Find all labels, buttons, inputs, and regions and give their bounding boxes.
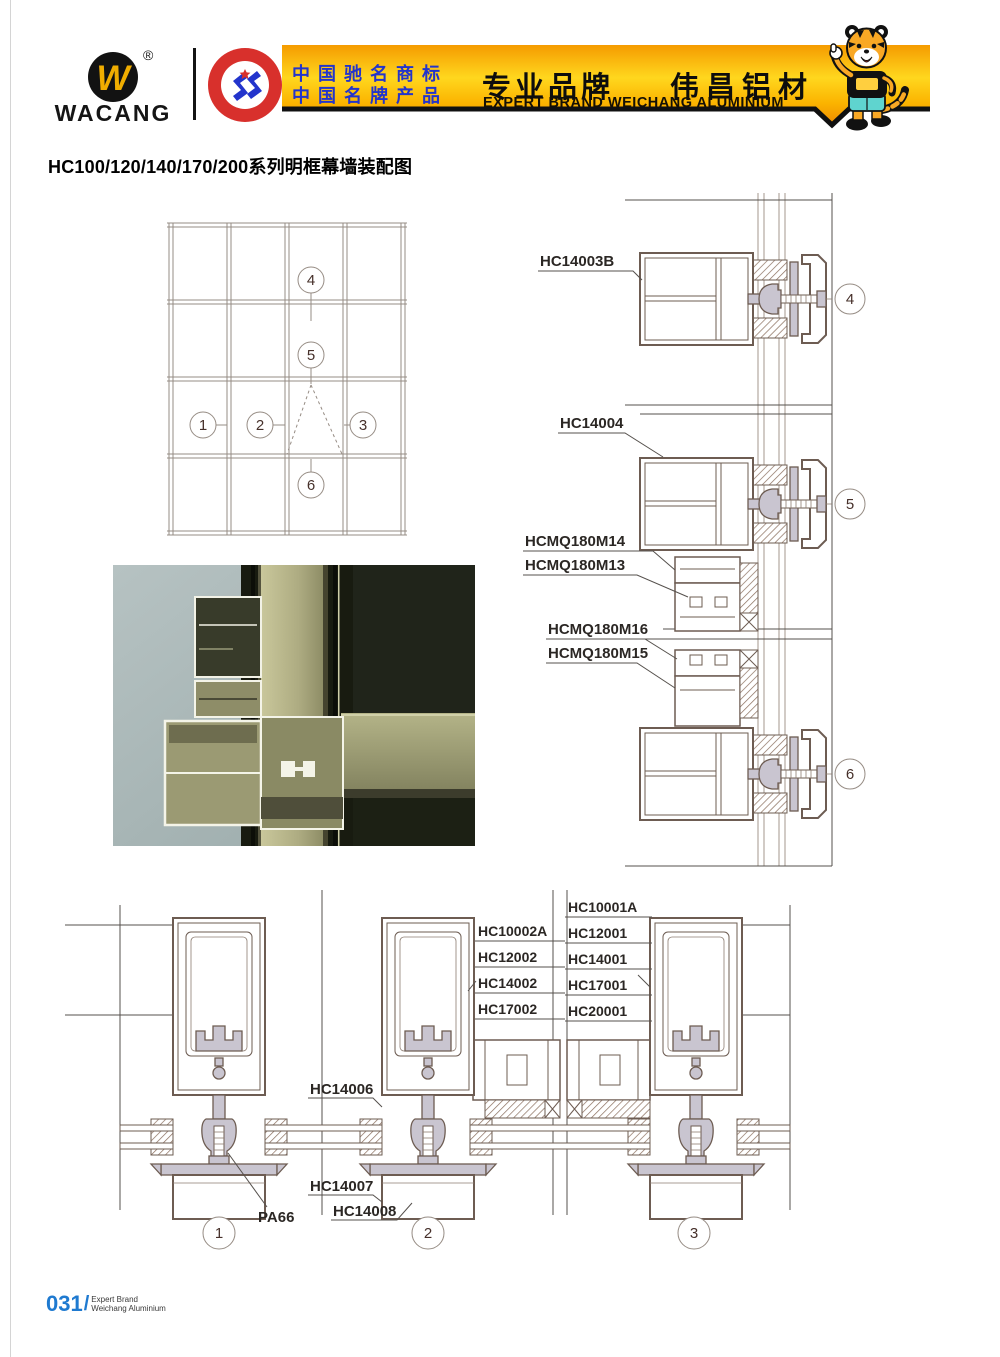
elevation-diagram: 4 5 1 2 3 6 [158,213,428,549]
svg-text:2: 2 [424,1225,432,1242]
footer-caption-line2: Weichang Aluminium [91,1304,166,1313]
banner-subtitle: EXPERT BRAND WEICHANG ALUMINIUM [483,95,784,111]
svg-text:HC14004: HC14004 [560,415,624,432]
svg-text:3: 3 [359,417,367,434]
detail-callout-3: 3 [678,1217,710,1249]
svg-text:HC17002: HC17002 [478,1001,537,1017]
tiger-mascot [828,20,912,132]
brand-name: WACANG [55,100,172,126]
svg-text:2: 2 [256,417,264,434]
label-hc14004: HC14004 [558,415,663,457]
svg-text:6: 6 [307,477,315,494]
svg-text:HCMQ180M15: HCMQ180M15 [548,645,648,662]
detail-5-section [640,458,832,550]
header: W ® WACANG 中国名牌 CHINA TOP BRAND [0,0,1000,145]
svg-text:HC14007: HC14007 [310,1178,373,1195]
detail-callout-2: 2 [412,1217,444,1249]
label-hc14003b: HC14003B [538,253,642,280]
banner-cn-line1: 中国驰名商标 [292,63,448,84]
footer-caption-line1: Expert Brand [91,1295,166,1304]
sash-frame-right-of-2 [473,1040,560,1118]
elevation-callout-5: 5 [298,342,324,368]
svg-text:6: 6 [846,766,854,783]
detail-callout-1: 1 [203,1217,235,1249]
label-hc14006: HC14006 [308,1081,382,1107]
elevation-callout-6: 6 [298,472,324,498]
detail-6-sub-profiles [675,650,758,726]
svg-text:4: 4 [307,272,315,289]
label-stack-section-3: HC10001A HC12001 HC14001 HC17001 HC20001 [565,899,652,1021]
page-number: 031 [46,1293,83,1315]
label-hcmq180m13: HCMQ180M13 [523,557,688,597]
logo-w: W [96,59,132,98]
svg-text:1: 1 [215,1225,223,1242]
svg-text:5: 5 [846,496,854,513]
elevation-callout-1: 1 [190,412,216,438]
product-photo-3d [113,565,475,846]
catalog-page: W ® WACANG 中国名牌 CHINA TOP BRAND [0,0,1000,1357]
detail-callout-6: 6 [835,759,865,789]
curtain-wall-grid [167,223,407,535]
svg-text:HC14008: HC14008 [333,1203,396,1220]
detail-6-section [640,728,832,820]
detail-callout-4: 4 [835,284,865,314]
label-hc14007: HC14007 [308,1178,382,1202]
svg-text:4: 4 [846,291,854,308]
transom-beam [341,713,475,797]
svg-text:HC12002: HC12002 [478,949,537,965]
sash-frame-left-of-3 [567,1040,650,1118]
footer: 031 / Expert Brand Weichang Aluminium [46,1293,166,1316]
svg-text:HC10001A: HC10001A [568,899,637,915]
svg-text:PA66: PA66 [258,1209,294,1226]
label-stack-section-2: HC10002A HC12002 HC14002 HC17002 [468,923,565,1019]
svg-text:HCMQ180M16: HCMQ180M16 [548,621,648,638]
brand-logo: W ® WACANG [45,40,195,130]
svg-text:HC14002: HC14002 [478,975,537,991]
vent-opening-symbol [287,385,342,454]
svg-text:HC10002A: HC10002A [478,923,547,939]
detail-5-sub-profiles [675,557,758,631]
svg-text:1: 1 [199,417,207,434]
banner-cn-line2: 中国名牌产品 [292,85,448,106]
page-edge-line [10,0,11,1357]
elevation-callout-2: 2 [247,412,273,438]
svg-text:HC17001: HC17001 [568,977,627,993]
quality-badge: 中国名牌 CHINA TOP BRAND [207,47,283,123]
svg-text:5: 5 [307,347,315,364]
detail-callout-5: 5 [835,489,865,519]
header-divider [193,48,196,120]
svg-text:HC14003B: HC14003B [540,253,614,270]
page-title: HC100/120/140/170/200系列明框幕墙装配图 [48,153,608,179]
svg-text:3: 3 [690,1225,698,1242]
section-1-mullion [151,918,287,1219]
detail-sections-bottom: HC10002A HC12002 HC14002 HC17002 HC10001… [60,885,960,1280]
svg-text:HC12001: HC12001 [568,925,627,941]
svg-text:HCMQ180M13: HCMQ180M13 [525,557,625,574]
elevation-callout-3: 3 [350,412,376,438]
svg-text:HCMQ180M14: HCMQ180M14 [525,533,626,550]
detail-4-section [640,253,832,345]
elevation-callout-4: 4 [298,267,324,293]
svg-text:HC14001: HC14001 [568,951,627,967]
footer-slash: / [84,1293,90,1316]
glass-panel [353,565,475,715]
detail-sections-right: HC14003B HC14004 HCMQ180M14 HCMQ180M13 H… [505,185,1000,880]
registered-mark: ® [143,47,154,63]
svg-text:HC20001: HC20001 [568,1003,627,1019]
svg-text:HC14006: HC14006 [310,1081,373,1098]
label-hcmq180m15: HCMQ180M15 [546,645,675,688]
gasket-hatch-blocks [151,1119,759,1155]
tiger-head [845,25,888,68]
